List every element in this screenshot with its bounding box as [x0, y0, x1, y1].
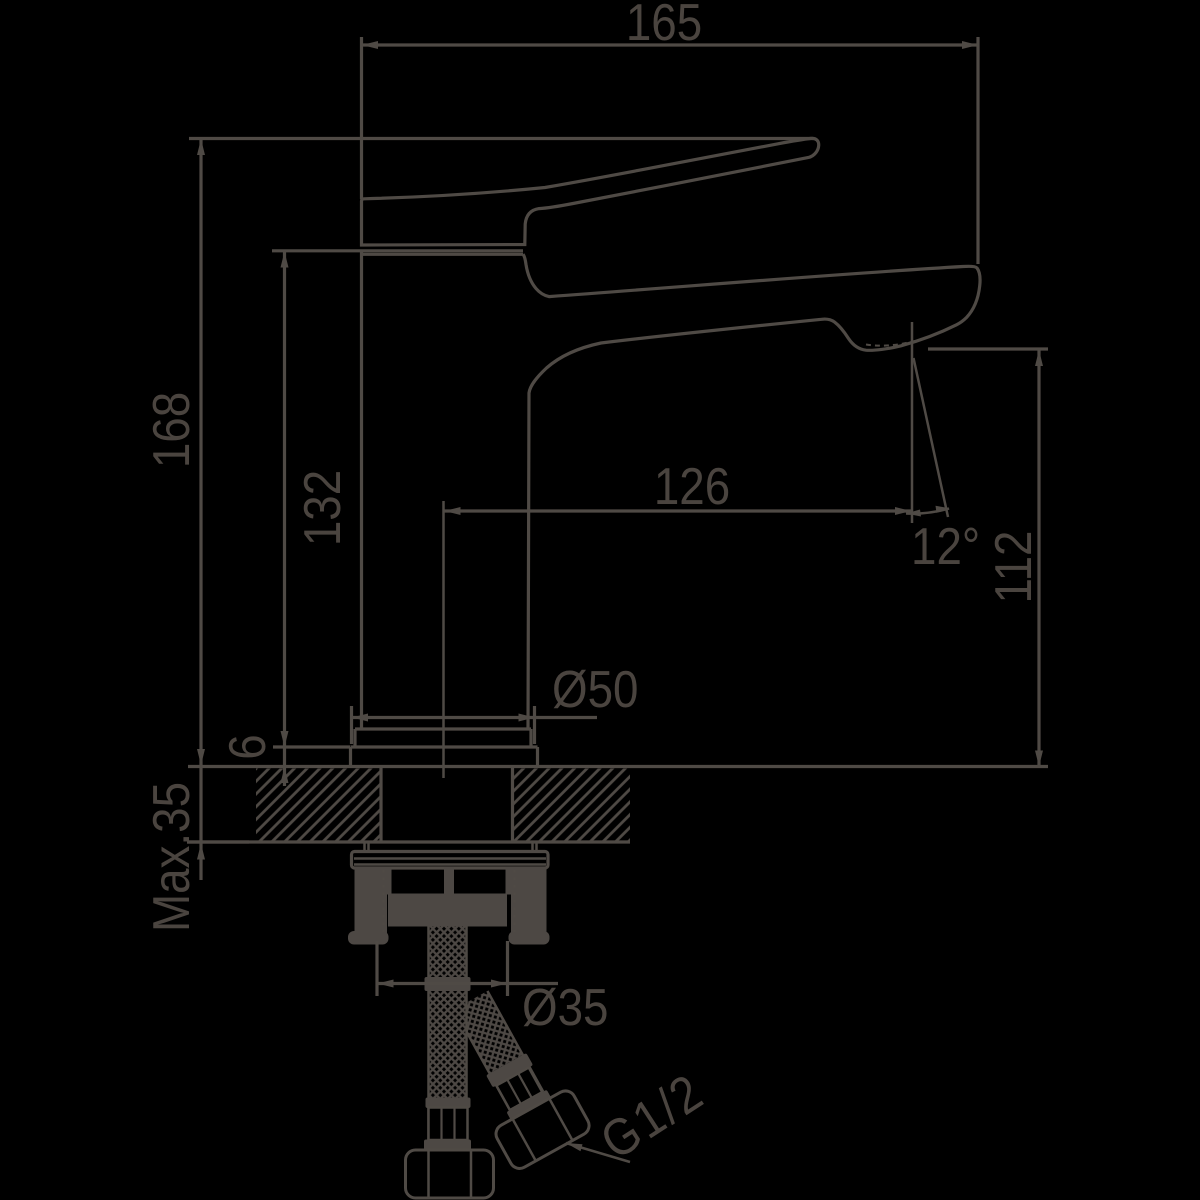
svg-text:165: 165: [626, 0, 702, 52]
svg-text:Ø35: Ø35: [522, 979, 608, 1036]
svg-text:Ø50: Ø50: [552, 661, 638, 718]
svg-text:112: 112: [985, 531, 1042, 604]
svg-text:12°: 12°: [911, 518, 980, 575]
svg-text:6: 6: [219, 734, 276, 759]
svg-text:132: 132: [294, 470, 351, 546]
svg-text:Max.35: Max.35: [143, 782, 200, 932]
svg-text:168: 168: [143, 392, 200, 468]
svg-text:126: 126: [654, 458, 730, 515]
